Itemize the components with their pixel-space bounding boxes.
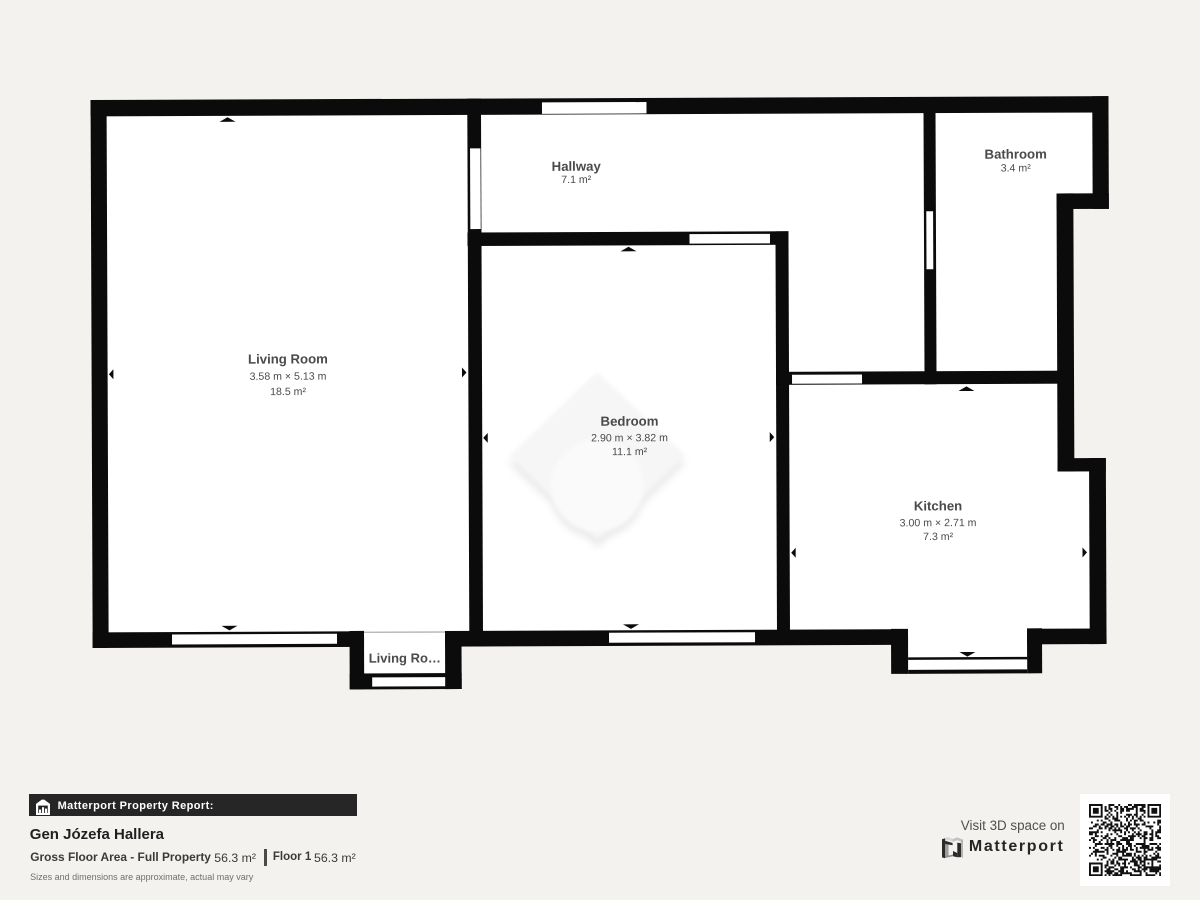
svg-text:7.1 m²: 7.1 m² bbox=[561, 174, 592, 186]
svg-text:Kitchen: Kitchen bbox=[914, 498, 962, 513]
svg-text:Bathroom: Bathroom bbox=[984, 146, 1046, 161]
svg-text:Bedroom: Bedroom bbox=[601, 414, 659, 429]
svg-text:7.3 m²: 7.3 m² bbox=[923, 531, 954, 543]
svg-text:11.1 m²: 11.1 m² bbox=[612, 446, 648, 458]
svg-text:3.00 m × 2.71 m: 3.00 m × 2.71 m bbox=[900, 517, 977, 529]
svg-text:3.4 m²: 3.4 m² bbox=[1001, 162, 1032, 174]
svg-text:Hallway: Hallway bbox=[552, 159, 602, 174]
svg-text:18.5 m²: 18.5 m² bbox=[270, 386, 306, 398]
svg-text:2.90 m × 3.82 m: 2.90 m × 3.82 m bbox=[591, 432, 668, 444]
svg-text:Living Ro…: Living Ro… bbox=[369, 650, 441, 665]
svg-text:Living Room: Living Room bbox=[248, 351, 328, 366]
svg-text:3.58 m × 5.13 m: 3.58 m × 5.13 m bbox=[250, 371, 327, 383]
